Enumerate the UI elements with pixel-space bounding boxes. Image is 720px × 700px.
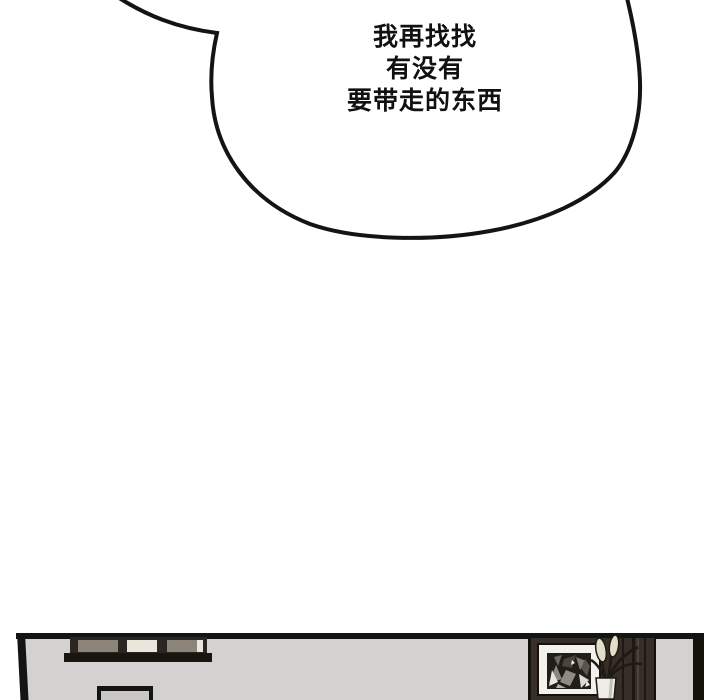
wardrobe-left-edge [528,638,531,700]
window-pane-sliver [197,640,203,652]
potted-plant [584,634,656,700]
plant-leaf-cream [594,637,608,662]
window-pane-right [167,640,197,652]
window-ledge [64,653,212,662]
window-pane-left [78,640,118,652]
vase [596,678,616,699]
window-pane-middle [127,640,157,652]
room-panel [0,0,720,700]
tv-frame [97,686,153,700]
plant-leaf-cream [608,634,620,657]
panel-right-border [693,633,704,700]
comic-page: 我再找找 有没有 要带走的东西 [0,0,720,700]
